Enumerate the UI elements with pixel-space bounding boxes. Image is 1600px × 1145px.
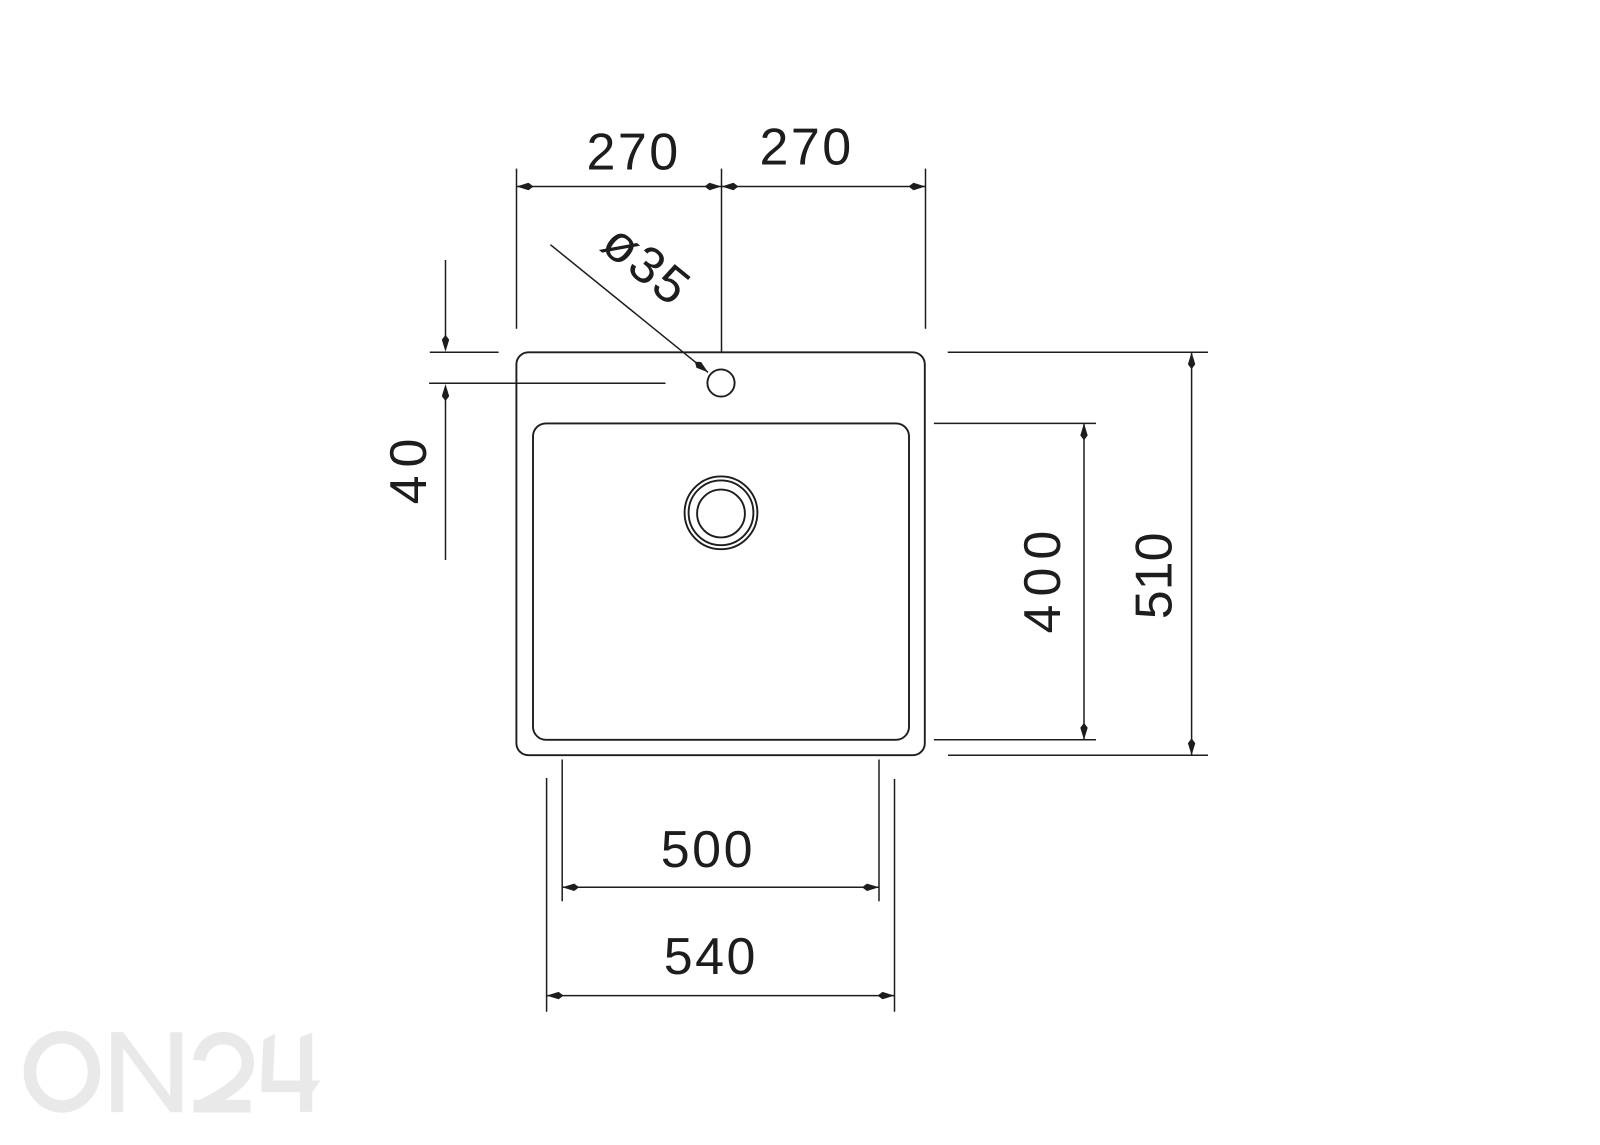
svg-text:540: 540 (664, 928, 758, 986)
svg-text:40: 40 (380, 431, 438, 505)
svg-text:270: 270 (586, 123, 680, 181)
svg-text:500: 500 (661, 821, 755, 879)
svg-text:270: 270 (759, 119, 853, 177)
svg-text:400: 400 (1014, 523, 1072, 634)
svg-text:510: 510 (1126, 533, 1184, 620)
